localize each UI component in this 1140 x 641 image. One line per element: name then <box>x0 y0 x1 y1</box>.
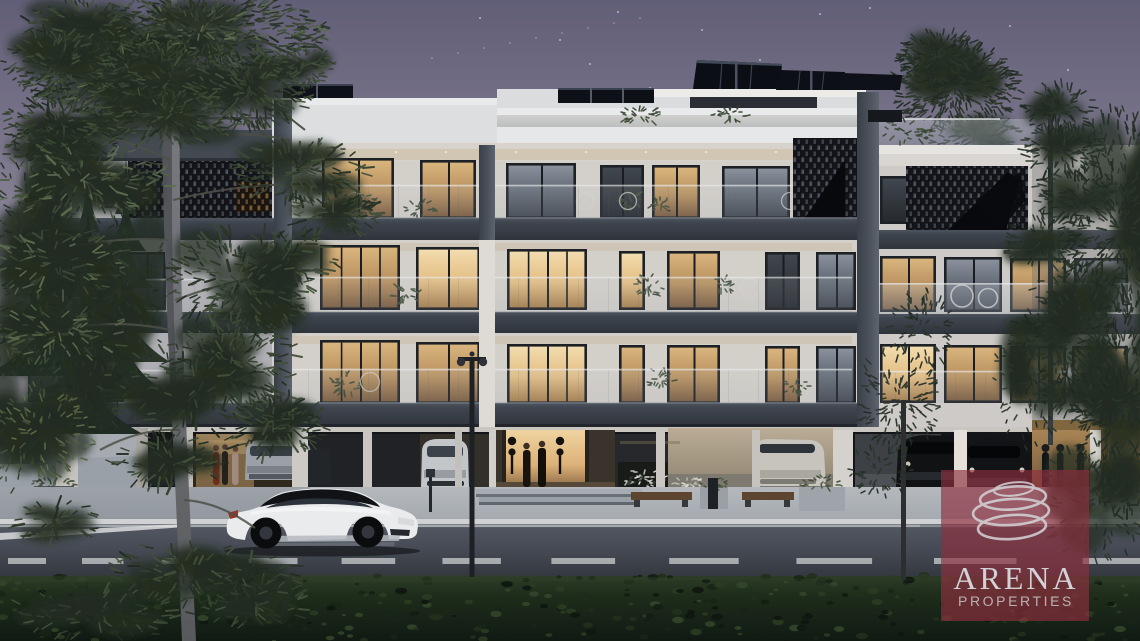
svg-text:ARENA: ARENA <box>953 560 1078 596</box>
svg-text:PROPERTIES: PROPERTIES <box>958 593 1074 609</box>
